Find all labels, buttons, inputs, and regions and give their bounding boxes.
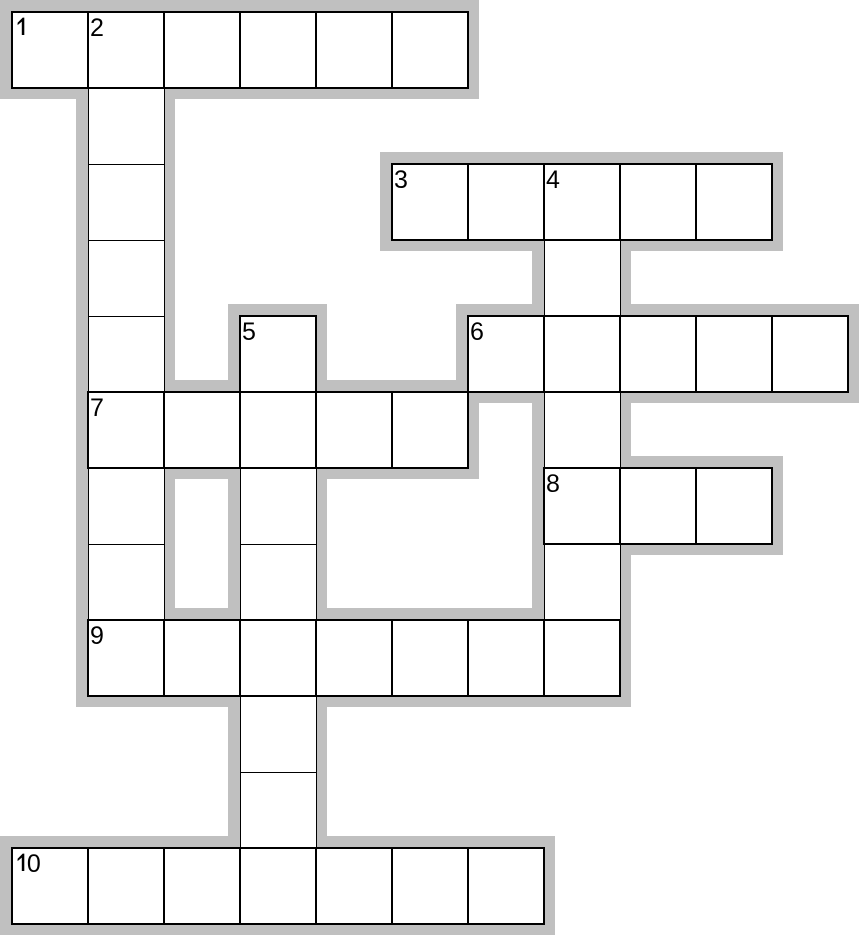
svg-text:2: 2 (90, 14, 104, 42)
svg-text:3: 3 (394, 166, 408, 194)
svg-text:5: 5 (242, 318, 256, 346)
svg-text:8: 8 (546, 470, 560, 498)
svg-text:0: 0 (27, 850, 41, 878)
svg-text:4: 4 (546, 166, 560, 194)
svg-text:9: 9 (90, 622, 104, 650)
svg-text:6: 6 (470, 318, 484, 346)
svg-text:7: 7 (90, 394, 104, 422)
